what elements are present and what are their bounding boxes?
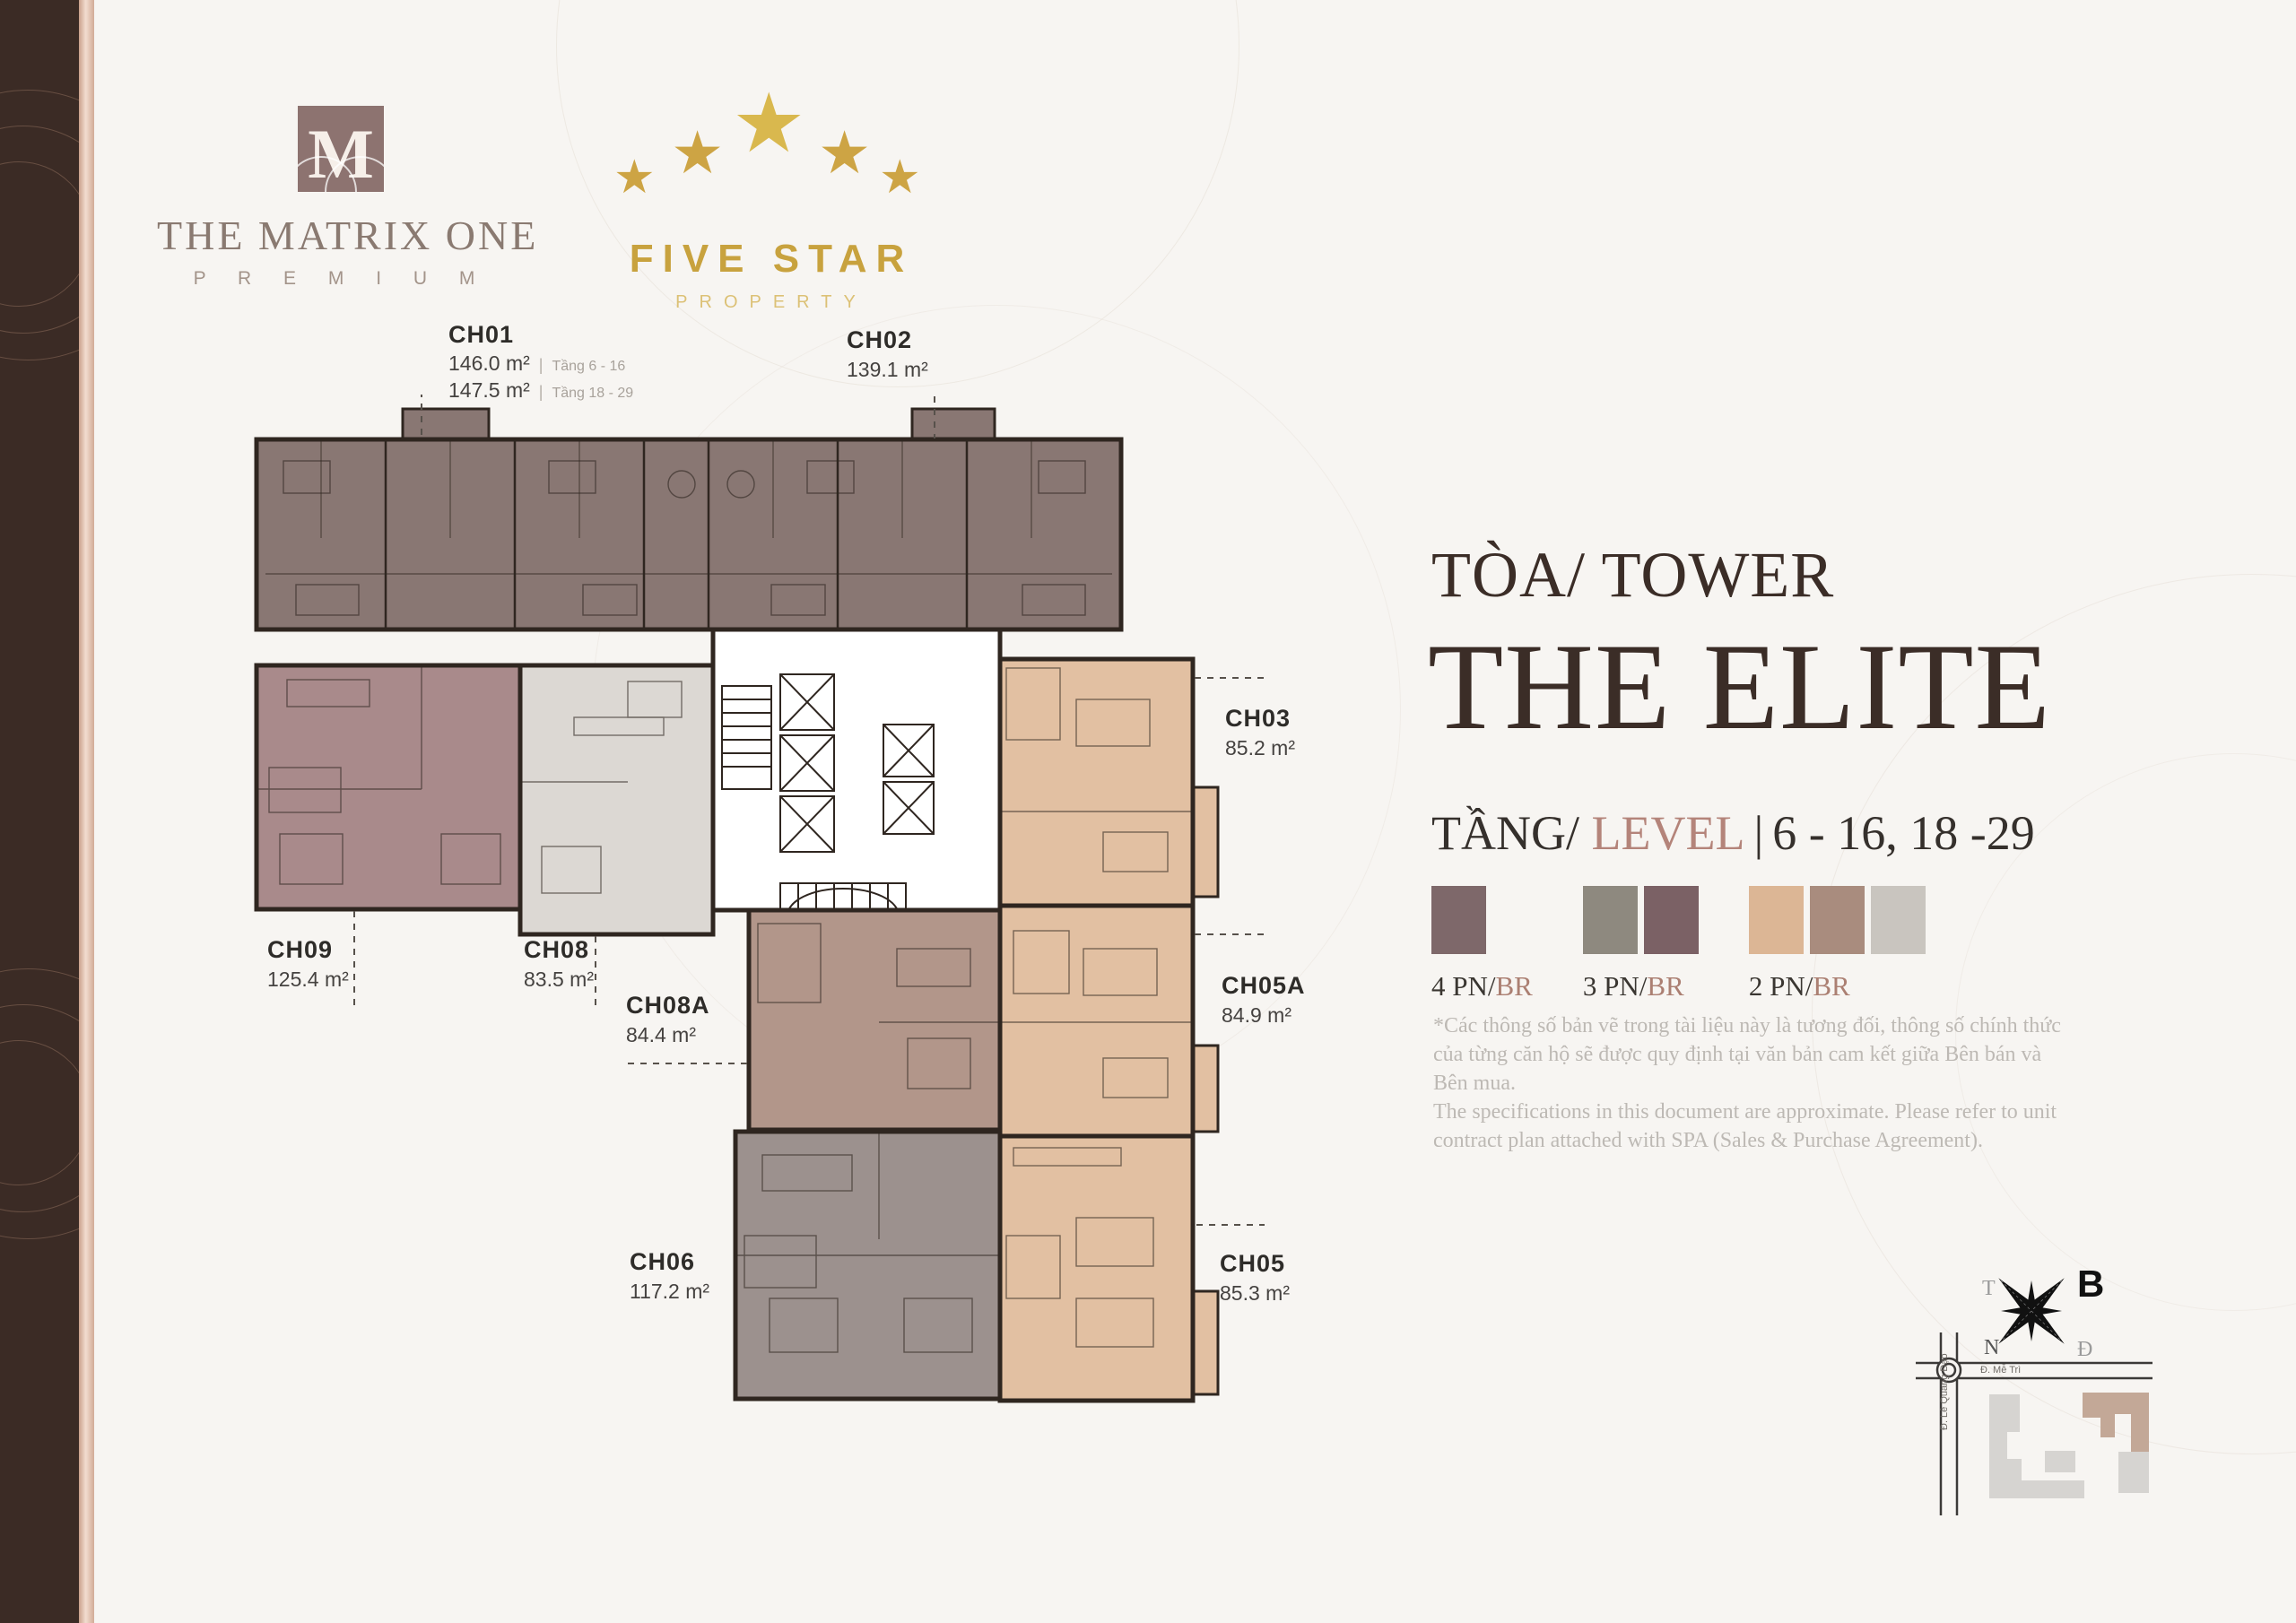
legend-swatch bbox=[1871, 886, 1926, 954]
unit-area-note: Tầng 18 - 29 bbox=[552, 386, 633, 402]
unit-id: CH01 bbox=[448, 321, 633, 349]
star-icon: ★ bbox=[671, 118, 724, 187]
unit-area: 85.2 m² bbox=[1225, 736, 1295, 760]
unit-id: CH05A bbox=[1222, 972, 1306, 1000]
road-name-horizontal: Đ. Mễ Trì bbox=[1980, 1365, 2021, 1376]
unit-label-ch03: CH03 85.2 m² bbox=[1225, 705, 1295, 760]
disclaimer-vi: *Các thông số bản vẽ trong tài liệu này … bbox=[1433, 1011, 2061, 1098]
legend-group-3br: 3 PN/BR bbox=[1583, 886, 1699, 1002]
compass-west-label: T bbox=[1982, 1277, 1996, 1301]
five-star-subtitle: PROPERTY bbox=[592, 292, 951, 313]
compass-and-map: B T N Đ Đ. Mễ Trì Đ. Lê Quang Đạo bbox=[1883, 1246, 2278, 1623]
compass-north-label: B bbox=[2077, 1263, 2104, 1306]
unit-area-note: Tầng 6 - 16 bbox=[552, 359, 625, 375]
unit-id: CH08A bbox=[626, 992, 710, 1020]
unit-label-ch01: CH01 146.0 m² | Tầng 6 - 16 147.5 m² | T… bbox=[448, 321, 633, 403]
unit-area: 139.1 m² bbox=[847, 358, 928, 382]
level-line: TẦNG/ LEVEL|6 - 16, 18 -29 bbox=[1431, 805, 2035, 861]
disclaimer-text: *Các thông số bản vẽ trong tài liệu này … bbox=[1433, 1011, 2061, 1155]
floor-plan bbox=[215, 395, 1283, 1435]
legend-swatch bbox=[1749, 886, 1804, 954]
compass-south-label: N bbox=[1984, 1336, 1999, 1360]
unit-ch01-ch02-block-shape bbox=[257, 409, 1121, 629]
five-star-title: FIVE STAR bbox=[592, 237, 951, 282]
brochure-page: M THE MATRIX ONE P R E M I U M ★ ★ ★ ★ ★… bbox=[0, 0, 2296, 1623]
five-star-stars-icon: ★ ★ ★ ★ ★ bbox=[592, 75, 951, 237]
matrix-monogram-icon: M bbox=[298, 106, 384, 192]
unit-label-ch09: CH09 125.4 m² bbox=[267, 936, 349, 992]
legend-swatch bbox=[1644, 886, 1699, 954]
compass-east-label: Đ bbox=[2077, 1338, 2092, 1362]
unit-id: CH09 bbox=[267, 936, 349, 964]
matrix-one-logo: M THE MATRIX ONE P R E M I U M bbox=[157, 106, 525, 290]
unit-ch05a-shape bbox=[1000, 906, 1218, 1136]
unit-id: CH05 bbox=[1220, 1250, 1290, 1278]
unit-area: 117.2 m² bbox=[630, 1280, 709, 1304]
legend-swatch bbox=[1583, 886, 1638, 954]
unit-id: CH02 bbox=[847, 326, 928, 354]
rose-gold-stripe bbox=[79, 0, 94, 1623]
unit-area: 83.5 m² bbox=[524, 968, 594, 992]
unit-label-ch05: CH05 85.3 m² bbox=[1220, 1250, 1290, 1306]
bedroom-legend: 4 PN/BR 3 PN/BR 2 PN/BR bbox=[1431, 886, 1926, 1002]
unit-ch08a-shape bbox=[749, 910, 1000, 1130]
level-label-en: LEVEL bbox=[1591, 806, 1744, 860]
map-buildings bbox=[1989, 1393, 2149, 1498]
road-name-vertical: Đ. Lê Quang Đạo bbox=[1939, 1353, 1950, 1430]
left-decor-sidebar bbox=[0, 0, 79, 1623]
unit-area: 84.4 m² bbox=[626, 1023, 710, 1047]
tower-name: THE ELITE bbox=[1428, 615, 2051, 758]
unit-ch05-shape bbox=[1000, 1136, 1218, 1401]
matrix-one-subtitle: P R E M I U M bbox=[157, 268, 525, 290]
star-icon: ★ bbox=[818, 118, 871, 187]
unit-area: 125.4 m² bbox=[267, 968, 349, 992]
unit-id: CH06 bbox=[630, 1248, 709, 1276]
unit-label-ch08: CH08 83.5 m² bbox=[524, 936, 594, 992]
unit-ch06-shape bbox=[735, 1132, 1001, 1399]
tower-prefix: TÒA/ TOWER bbox=[1431, 538, 1834, 612]
level-range: 6 - 16, 18 -29 bbox=[1772, 806, 2034, 860]
five-star-logo: ★ ★ ★ ★ ★ FIVE STAR PROPERTY bbox=[592, 75, 951, 313]
legend-swatch bbox=[1431, 886, 1486, 954]
level-label-vi: TẦNG/ bbox=[1431, 806, 1591, 860]
unit-area: 84.9 m² bbox=[1222, 1003, 1306, 1028]
legend-swatch bbox=[1810, 886, 1865, 954]
unit-area: 146.0 m² bbox=[448, 352, 530, 376]
star-icon: ★ bbox=[732, 75, 805, 171]
unit-label-ch06: CH06 117.2 m² bbox=[630, 1248, 709, 1304]
unit-label-ch08a: CH08A 84.4 m² bbox=[626, 992, 710, 1047]
legend-group-2br: 2 PN/BR bbox=[1749, 886, 1926, 1002]
disclaimer-en: The specifications in this document are … bbox=[1433, 1098, 2061, 1155]
unit-ch09-shape bbox=[257, 665, 520, 909]
matrix-one-title: THE MATRIX ONE bbox=[157, 212, 525, 259]
unit-id: CH08 bbox=[524, 936, 594, 964]
star-icon: ★ bbox=[879, 151, 921, 204]
unit-area: 147.5 m² bbox=[448, 378, 530, 403]
unit-area: 85.3 m² bbox=[1220, 1281, 1290, 1306]
star-icon: ★ bbox=[613, 151, 656, 204]
unit-label-ch05a: CH05A 84.9 m² bbox=[1222, 972, 1306, 1028]
unit-ch08-shape bbox=[520, 665, 713, 934]
core-shape bbox=[713, 629, 1000, 948]
unit-label-ch02: CH02 139.1 m² bbox=[847, 326, 928, 382]
unit-id: CH03 bbox=[1225, 705, 1295, 733]
legend-group-4br: 4 PN/BR bbox=[1431, 886, 1533, 1002]
unit-ch03-shape bbox=[1000, 659, 1218, 906]
